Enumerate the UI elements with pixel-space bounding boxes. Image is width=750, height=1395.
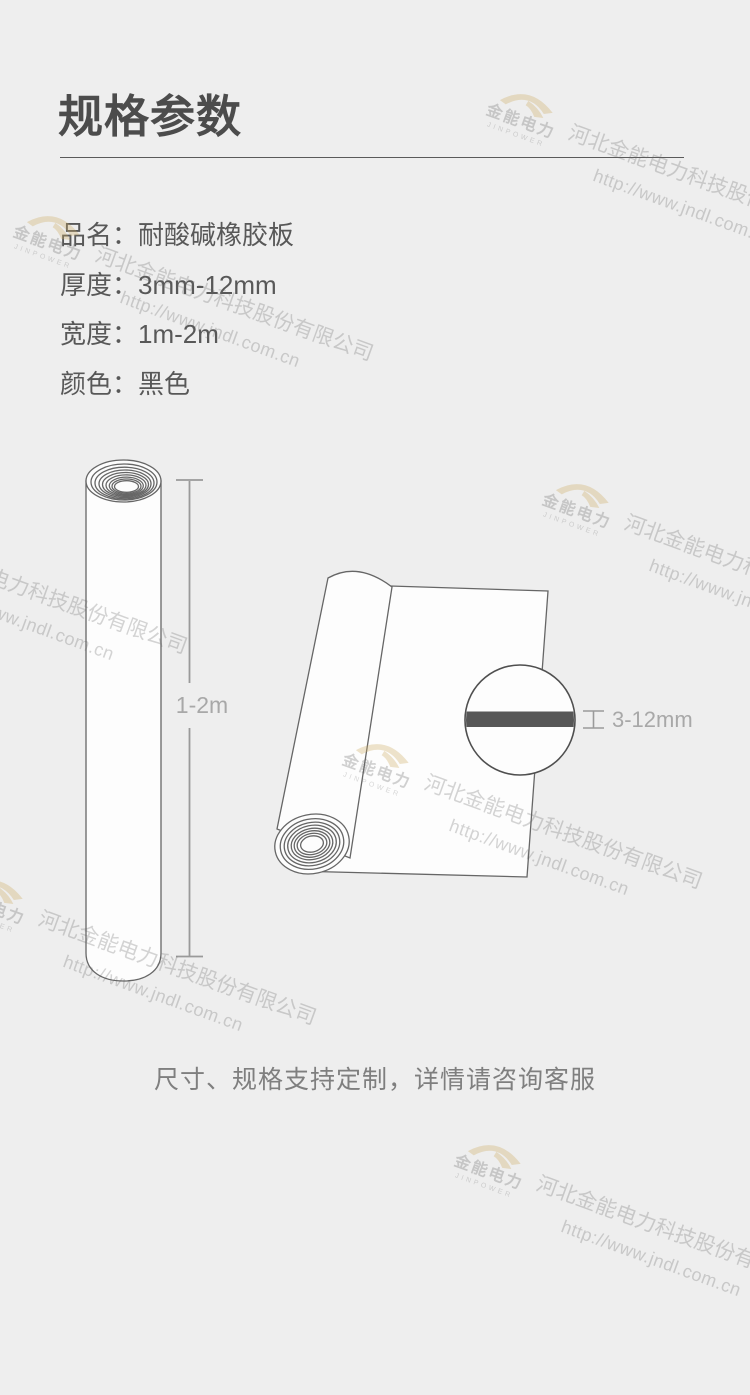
page-title: 规格参数	[58, 80, 242, 145]
thickness-dimension-marker	[583, 711, 604, 728]
length-dimension-label: 1-2m	[171, 692, 233, 719]
rubber-roll-illustrations	[0, 0, 750, 1165]
spec-value: 耐酸碱橡胶板	[138, 221, 294, 250]
spec-value: 3mm-12mm	[138, 271, 277, 300]
thickness-magnifier	[463, 665, 577, 775]
spec-value: 黑色	[138, 370, 190, 399]
watermark-tile: 金能电力 JINPOWER 河北金能电力科技股份有限公司 http://www.…	[428, 1127, 750, 1395]
thickness-dimension-label: 3-12mm	[612, 707, 693, 733]
customization-note: 尺寸、规格支持定制，详情请咨询客服	[0, 1060, 750, 1096]
spec-row-width: 宽度： 1m-2m	[60, 320, 219, 349]
spec-row-thickness: 厚度： 3mm-12mm	[60, 271, 277, 300]
logo-subname: JINPOWER	[447, 1169, 520, 1204]
roll-side-view-illustration	[86, 460, 161, 981]
spec-label: 宽度：	[60, 320, 138, 349]
spec-row-color: 颜色： 黑色	[60, 370, 190, 399]
watermark-url-text: http://www.jndl.com.cn	[558, 1216, 744, 1301]
product-spec-page: { "header": { "title": "规格参数" }, "specs"…	[0, 0, 750, 1165]
title-underline	[60, 157, 684, 158]
spec-value: 1m-2m	[138, 320, 219, 349]
spec-row-product-name: 品名： 耐酸碱橡胶板	[60, 221, 294, 250]
watermark-company-text: 河北金能电力科技股份有限公司	[532, 1168, 750, 1297]
spec-label: 厚度：	[60, 271, 138, 300]
spec-label: 品名：	[60, 221, 138, 250]
spec-label: 颜色：	[60, 370, 138, 399]
